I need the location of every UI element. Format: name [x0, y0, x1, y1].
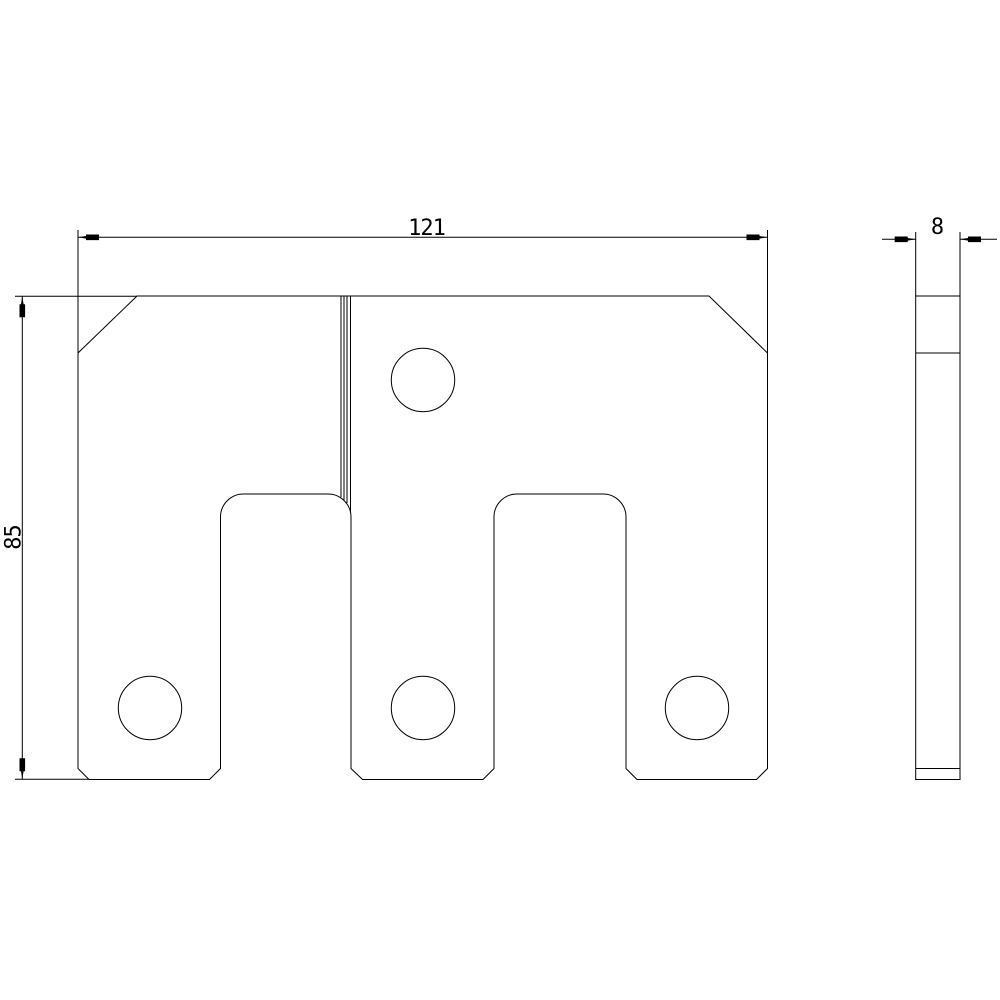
- thickness-dimension: 8: [882, 215, 997, 296]
- bottom-right-hole: [665, 676, 728, 739]
- top-hole: [391, 348, 454, 411]
- bottom-left-hole: [118, 676, 181, 739]
- side-view-outline: [916, 296, 960, 780]
- arrowhead-bottom: [20, 758, 26, 779]
- arrowhead-top: [20, 296, 26, 317]
- arrowhead-left: [895, 237, 916, 243]
- height-dimension: 85: [2, 296, 138, 779]
- technical-drawing-canvas: 121 85 8: [0, 0, 1000, 1000]
- thickness-dimension-label: 8: [931, 215, 943, 240]
- width-dimension: 121: [78, 216, 768, 353]
- arrowhead-right: [960, 237, 981, 243]
- bottom-center-hole: [391, 676, 454, 739]
- side-view: [916, 296, 960, 780]
- arrowhead-left: [78, 235, 99, 241]
- front-view: [78, 296, 768, 780]
- width-dimension-label: 121: [408, 216, 445, 241]
- arrowhead-right: [747, 235, 768, 241]
- height-dimension-label: 85: [2, 525, 27, 550]
- slit-detail: [341, 296, 351, 513]
- technical-drawing-page: 121 85 8: [0, 0, 1000, 1000]
